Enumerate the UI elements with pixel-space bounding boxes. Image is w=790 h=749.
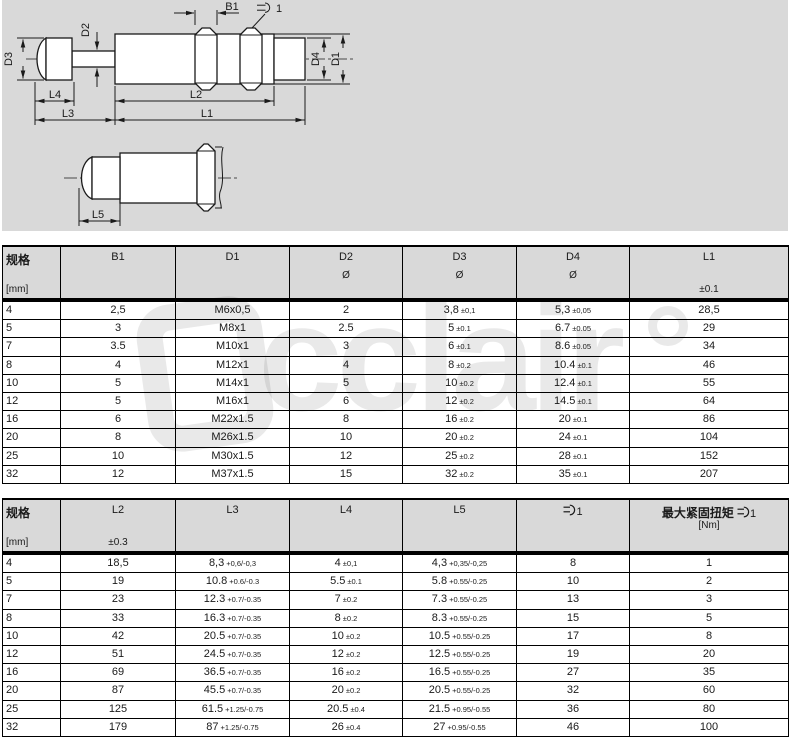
- value-cell: 28,5: [630, 300, 789, 320]
- end-cylinder: [274, 38, 305, 80]
- value-cell: M26x1.5: [176, 429, 290, 447]
- l2-tolerance: ±0.3: [61, 537, 175, 548]
- table2-header-row: 规格 [mm] L2 ±0.3 L3 L4 L5: [3, 499, 789, 553]
- value-cell: 33: [61, 609, 176, 627]
- value-cell: 2,5: [61, 300, 176, 320]
- value-cell: 20.5+0.55/-0.25: [403, 682, 517, 700]
- value-cell: M16x1: [176, 392, 290, 410]
- value-cell: 125: [61, 700, 176, 718]
- spec-label: 规格: [3, 251, 63, 268]
- value-cell: 4±0,1: [290, 553, 403, 573]
- value-cell: 2: [630, 573, 789, 591]
- value-cell: 207: [630, 465, 789, 483]
- value-cell: 16.5+0.55/-0.25: [403, 664, 517, 682]
- value-cell: 2.5: [290, 320, 403, 338]
- table-row: 2512561.5+1.25/-0.7520.5±0.421.5+0.95/-0…: [3, 700, 789, 718]
- table-row: 2510M30x1.51225±0.228±0.1152: [3, 447, 789, 465]
- value-cell: 87: [61, 682, 176, 700]
- diameter-symbol: Ø: [403, 270, 516, 281]
- value-cell: 12: [290, 447, 403, 465]
- value-cell: 69: [61, 664, 176, 682]
- size-cell: 12: [3, 392, 61, 410]
- value-cell: 12.4±0.1: [517, 374, 630, 392]
- value-cell: 19: [61, 573, 176, 591]
- value-cell: 20.5±0.4: [290, 700, 403, 718]
- value-cell: 8: [517, 553, 630, 573]
- unit-label: [mm]: [3, 284, 63, 295]
- value-cell: 6: [290, 392, 403, 410]
- table-row: 166M22x1.5816±0.220±0.186: [3, 411, 789, 429]
- value-cell: 6±0.1: [403, 338, 517, 356]
- value-cell: 25±0.2: [403, 447, 517, 465]
- table-row: 73.5M10x136±0.18.6±0.0534: [3, 338, 789, 356]
- value-cell: 42: [61, 627, 176, 645]
- label-wrench-num: 1: [276, 3, 282, 15]
- size-cell: 4: [3, 553, 61, 573]
- value-cell: 12±0.2: [290, 645, 403, 663]
- value-cell: M12x1: [176, 356, 290, 374]
- value-cell: 26±0.4: [290, 718, 403, 736]
- header-torque: 最大紧固扭矩 1 [Nm]: [630, 499, 789, 553]
- value-cell: 20.5+0.7/-0.35: [176, 627, 290, 645]
- table-row: 125124.5+0.7/-0.3512±0.212.5+0.55/-0.251…: [3, 645, 789, 663]
- size-cell: 32: [3, 465, 61, 483]
- header-d2: D2 Ø: [290, 246, 403, 300]
- table-row: 105M14x1510±0.212.4±0.155: [3, 374, 789, 392]
- body-2: [120, 153, 197, 203]
- size-cell: 5: [3, 320, 61, 338]
- value-cell: 16±0.2: [290, 664, 403, 682]
- value-cell: 14.5±0.1: [517, 392, 630, 410]
- value-cell: 10: [61, 447, 176, 465]
- value-cell: 10.8+0.6/-0.3: [176, 573, 290, 591]
- value-cell: 8±0.2: [290, 609, 403, 627]
- value-cell: 34: [630, 338, 789, 356]
- value-cell: 46: [630, 356, 789, 374]
- table-row: 104220.5+0.7/-0.3510±0.210.5+0.55/-0.251…: [3, 627, 789, 645]
- value-cell: 5: [61, 392, 176, 410]
- technical-drawing: B1 1 D3 D2: [2, 0, 788, 231]
- value-cell: 18,5: [61, 553, 176, 573]
- dimensions-table-1: 规格 [mm] B1 D1 D2 Ø D3 Ø D4: [2, 245, 789, 484]
- value-cell: 7.3+0.55/-0.25: [403, 591, 517, 609]
- hex-nut-3: [197, 144, 215, 211]
- value-cell: 8,3+0,6/-0,3: [176, 553, 290, 573]
- value-cell: 27: [517, 664, 630, 682]
- value-cell: 61.5+1.25/-0.75: [176, 700, 290, 718]
- rod-end-cap-dome: [37, 38, 46, 80]
- label-d4: D4: [310, 52, 322, 66]
- value-cell: 32±0.2: [403, 465, 517, 483]
- value-cell: 29: [630, 320, 789, 338]
- header-l5: L5: [403, 499, 517, 553]
- label-d3: D3: [3, 52, 15, 66]
- cap-dome-2: [82, 157, 93, 199]
- torque-unit: [Nm]: [630, 520, 788, 531]
- value-cell: 5.5±0.1: [290, 573, 403, 591]
- value-cell: 100: [630, 718, 789, 736]
- header-l3: L3: [176, 499, 290, 553]
- value-cell: 55: [630, 374, 789, 392]
- dim-l1: L1: [115, 108, 305, 120]
- value-cell: 17: [517, 627, 630, 645]
- value-cell: 15: [517, 609, 630, 627]
- value-cell: 16.3+0.7/-0.35: [176, 609, 290, 627]
- spec-label: 规格: [3, 504, 63, 521]
- dimensions-table-2: 规格 [mm] L2 ±0.3 L3 L4 L5: [2, 498, 789, 737]
- hex-nut-2: [240, 28, 262, 90]
- value-cell: 19: [517, 645, 630, 663]
- value-cell: 5±0.1: [403, 320, 517, 338]
- table-row: 3212M37x1.51532±0.235±0.1207: [3, 465, 789, 483]
- table-row: 418,58,3+0,6/-0,34±0,14,3+0,35/-0,2581: [3, 553, 789, 573]
- value-cell: 8: [630, 627, 789, 645]
- value-cell: 8: [290, 411, 403, 429]
- hex-nut-1: [195, 28, 217, 90]
- value-cell: 28±0.1: [517, 447, 630, 465]
- table2-body: 418,58,3+0,6/-0,34±0,14,3+0,35/-0,258151…: [3, 553, 789, 736]
- value-cell: 7±0.2: [290, 591, 403, 609]
- value-cell: 1: [630, 553, 789, 573]
- value-cell: 3,8±0,1: [403, 300, 517, 320]
- value-cell: 27+0.95/-0.55: [403, 718, 517, 736]
- header-b1: B1: [61, 246, 176, 300]
- value-cell: 23: [61, 591, 176, 609]
- value-cell: 24±0.1: [517, 429, 630, 447]
- value-cell: 80: [630, 700, 789, 718]
- size-cell: 8: [3, 609, 61, 627]
- table-row: 83316.3+0.7/-0.358±0.28.3+0.55/-0.25155: [3, 609, 789, 627]
- value-cell: 36.5+0.7/-0.35: [176, 664, 290, 682]
- value-cell: 4,3+0,35/-0,25: [403, 553, 517, 573]
- size-cell: 16: [3, 411, 61, 429]
- break-line: [215, 147, 223, 208]
- value-cell: 20: [630, 645, 789, 663]
- dim-l2: L2: [115, 89, 274, 101]
- dim-l4: L4: [35, 89, 74, 101]
- value-cell: 10.4±0.1: [517, 356, 630, 374]
- value-cell: 60: [630, 682, 789, 700]
- value-cell: 5,3±0,05: [517, 300, 630, 320]
- value-cell: 3.5: [61, 338, 176, 356]
- value-cell: 10±0.2: [403, 374, 517, 392]
- value-cell: 12.5+0.55/-0.25: [403, 645, 517, 663]
- value-cell: M30x1.5: [176, 447, 290, 465]
- size-cell: 4: [3, 300, 61, 320]
- table-row: 208M26x1.51020±0.224±0.1104: [3, 429, 789, 447]
- value-cell: 3: [290, 338, 403, 356]
- l1-tolerance: ±0.1: [630, 284, 788, 295]
- value-cell: 51: [61, 645, 176, 663]
- value-cell: 6.7±0.05: [517, 320, 630, 338]
- value-cell: 20±0.1: [517, 411, 630, 429]
- label-b1: B1: [225, 1, 238, 13]
- value-cell: M37x1.5: [176, 465, 290, 483]
- value-cell: 21.5+0.95/-0.55: [403, 700, 517, 718]
- value-cell: 12.3+0.7/-0.35: [176, 591, 290, 609]
- size-cell: 8: [3, 356, 61, 374]
- size-cell: 10: [3, 374, 61, 392]
- table-row: 166936.5+0.7/-0.3516±0.216.5+0.55/-0.252…: [3, 664, 789, 682]
- label-l5: L5: [92, 209, 104, 221]
- value-cell: 16±0.2: [403, 411, 517, 429]
- diameter-symbol: Ø: [517, 270, 629, 281]
- value-cell: M6x0,5: [176, 300, 290, 320]
- value-cell: 12±0.2: [403, 392, 517, 410]
- header-d3: D3 Ø: [403, 246, 517, 300]
- table-row: 208745.5+0.7/-0.3520±0.220.5+0.55/-0.253…: [3, 682, 789, 700]
- wrench-flats-icon: [265, 3, 270, 12]
- value-cell: 104: [630, 429, 789, 447]
- diameter-symbol: Ø: [290, 270, 402, 281]
- value-cell: 8.3+0.55/-0.25: [403, 609, 517, 627]
- table-row: 125M16x1612±0.214.5±0.164: [3, 392, 789, 410]
- value-cell: 45.5+0.7/-0.35: [176, 682, 290, 700]
- value-cell: 15: [290, 465, 403, 483]
- value-cell: 13: [517, 591, 630, 609]
- size-cell: 7: [3, 338, 61, 356]
- dim-d4: D4: [307, 38, 331, 80]
- label-d1: D1: [330, 52, 342, 66]
- value-cell: 3: [630, 591, 789, 609]
- header-spec: 规格 [mm]: [3, 499, 61, 553]
- wrench-flats-icon: [737, 506, 750, 518]
- label-l2: L2: [190, 89, 202, 101]
- table-row: 72312.3+0.7/-0.357±0.27.3+0.55/-0.25133: [3, 591, 789, 609]
- value-cell: 8±0.2: [403, 356, 517, 374]
- value-cell: M14x1: [176, 374, 290, 392]
- table-row: 3217987+1.25/-0.7526±0.427+0.95/-0.55461…: [3, 718, 789, 736]
- datasheet-page: B1 1 D3 D2: [0, 0, 790, 749]
- size-cell: 25: [3, 447, 61, 465]
- value-cell: 64: [630, 392, 789, 410]
- size-cell: 10: [3, 627, 61, 645]
- value-cell: 35: [630, 664, 789, 682]
- value-cell: 8: [61, 429, 176, 447]
- header-l4: L4: [290, 499, 403, 553]
- table-row: 84M12x148±0.210.4±0.146: [3, 356, 789, 374]
- value-cell: 24.5+0.7/-0.35: [176, 645, 290, 663]
- header-spec: 规格 [mm]: [3, 246, 61, 300]
- header-l1: L1 ±0.1: [630, 246, 789, 300]
- value-cell: 5: [630, 609, 789, 627]
- rod-end-cap: [46, 38, 72, 80]
- size-cell: 12: [3, 645, 61, 663]
- value-cell: 32: [517, 682, 630, 700]
- header-d4: D4 Ø: [517, 246, 630, 300]
- value-cell: 35±0.1: [517, 465, 630, 483]
- value-cell: 5: [290, 374, 403, 392]
- value-cell: 6: [61, 411, 176, 429]
- label-l3: L3: [62, 108, 74, 120]
- table1-body: 42,5M6x0,523,8±0,15,3±0,0528,553M8x12.55…: [3, 300, 789, 483]
- value-cell: 4: [290, 356, 403, 374]
- value-cell: 3: [61, 320, 176, 338]
- value-cell: 8.6±0.05: [517, 338, 630, 356]
- dim-l3: L3: [35, 108, 115, 120]
- table-row: 42,5M6x0,523,8±0,15,3±0,0528,5: [3, 300, 789, 320]
- size-cell: 7: [3, 591, 61, 609]
- wrench-num: 1: [576, 506, 582, 518]
- label-l1: L1: [201, 108, 213, 120]
- value-cell: 12: [61, 465, 176, 483]
- value-cell: 152: [630, 447, 789, 465]
- label-d2: D2: [80, 23, 92, 37]
- size-cell: 25: [3, 700, 61, 718]
- value-cell: M8x1: [176, 320, 290, 338]
- value-cell: 10: [517, 573, 630, 591]
- drawing-panel: B1 1 D3 D2: [2, 0, 788, 231]
- value-cell: M10x1: [176, 338, 290, 356]
- value-cell: 10.5+0.55/-0.25: [403, 627, 517, 645]
- value-cell: M22x1.5: [176, 411, 290, 429]
- table1-header-row: 规格 [mm] B1 D1 D2 Ø D3 Ø D4: [3, 246, 789, 300]
- value-cell: 36: [517, 700, 630, 718]
- label-l4: L4: [49, 89, 61, 101]
- main-body: [115, 34, 197, 84]
- value-cell: 86: [630, 411, 789, 429]
- size-cell: 16: [3, 664, 61, 682]
- value-cell: 4: [61, 356, 176, 374]
- dim-b1: B1: [174, 1, 239, 25]
- value-cell: 10±0.2: [290, 627, 403, 645]
- wrench-flats-icon: [563, 504, 576, 516]
- value-cell: 46: [517, 718, 630, 736]
- header-d1: D1: [176, 246, 290, 300]
- value-cell: 5: [61, 374, 176, 392]
- piston-rod: [72, 51, 115, 67]
- value-cell: 20±0.2: [403, 429, 517, 447]
- torque-label: 最大紧固扭矩: [662, 506, 734, 520]
- value-cell: 2: [290, 300, 403, 320]
- cap-2: [92, 157, 120, 199]
- unit-label: [mm]: [3, 537, 63, 548]
- header-wrench-flats: 1: [517, 499, 630, 553]
- value-cell: 179: [61, 718, 176, 736]
- size-cell: 20: [3, 682, 61, 700]
- value-cell: 87+1.25/-0.75: [176, 718, 290, 736]
- size-cell: 5: [3, 573, 61, 591]
- torque-num: 1: [750, 508, 756, 520]
- size-cell: 32: [3, 718, 61, 736]
- value-cell: 20±0.2: [290, 682, 403, 700]
- table-row: 51910.8+0.6/-0.35.5±0.15.8+0.55/-0.25102: [3, 573, 789, 591]
- header-l2: L2 ±0.3: [61, 499, 176, 553]
- size-cell: 20: [3, 429, 61, 447]
- table-row: 53M8x12.55±0.16.7±0.0529: [3, 320, 789, 338]
- wrench-flats-callout: 1: [252, 3, 282, 28]
- value-cell: 5.8+0.55/-0.25: [403, 573, 517, 591]
- value-cell: 10: [290, 429, 403, 447]
